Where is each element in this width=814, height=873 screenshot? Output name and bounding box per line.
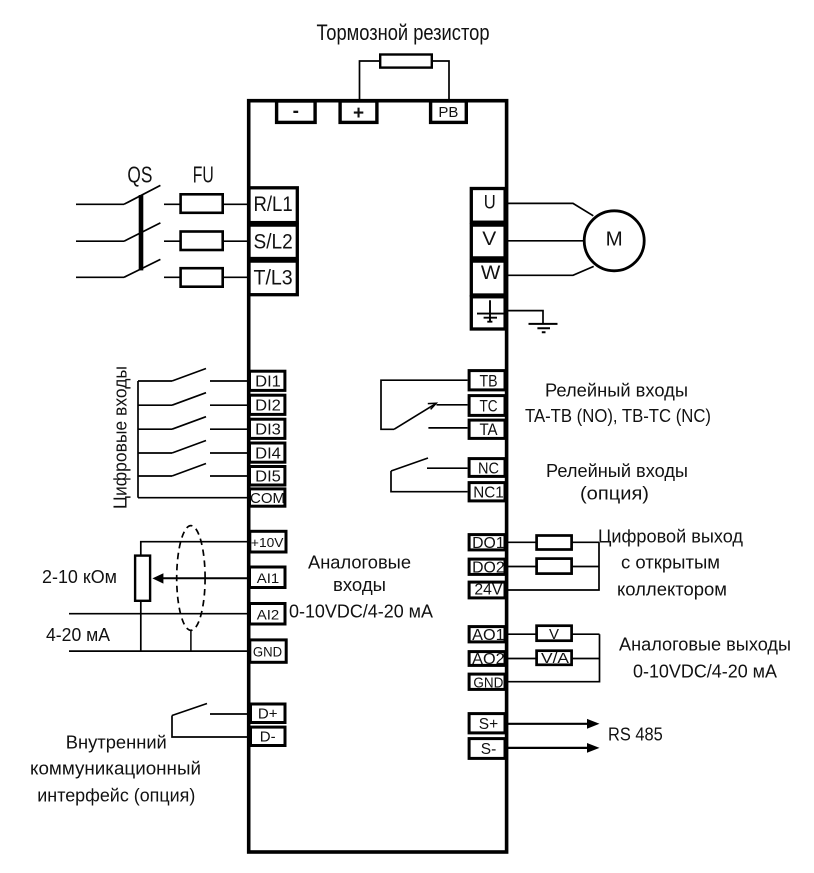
svg-text:AI1: AI1 [257, 570, 280, 586]
svg-text:Релейный входы: Релейный входы [546, 461, 688, 481]
svg-text:0-10VDC/4-20 мА: 0-10VDC/4-20 мА [633, 662, 777, 682]
svg-text:AO2: AO2 [472, 651, 505, 668]
svg-text:V: V [482, 228, 496, 250]
svg-text:DI5: DI5 [255, 468, 281, 485]
svg-text:DI4: DI4 [255, 445, 281, 462]
svg-text:V/A: V/A [541, 650, 569, 667]
svg-text:NC1: NC1 [473, 485, 504, 502]
svg-text:входы: входы [333, 575, 386, 595]
svg-text:TC: TC [479, 398, 497, 416]
svg-text:GND: GND [253, 644, 282, 660]
svg-text:R/L1: R/L1 [254, 193, 293, 216]
svg-text:GND: GND [473, 674, 503, 691]
svg-text:S+: S+ [479, 716, 498, 733]
svg-text:D+: D+ [258, 706, 278, 723]
svg-text:Тормозной резистор: Тормозной резистор [317, 20, 490, 45]
svg-text:DO1: DO1 [472, 535, 505, 552]
svg-text:PB: PB [438, 104, 458, 121]
svg-text:DO2: DO2 [472, 559, 505, 576]
svg-text:Релейный входы: Релейный входы [545, 381, 688, 401]
svg-text:M: M [606, 228, 623, 251]
svg-text:Аналоговые: Аналоговые [308, 552, 411, 572]
svg-text:DI1: DI1 [255, 373, 281, 390]
svg-text:FU: FU [193, 162, 214, 188]
svg-text:с открытым: с открытым [621, 553, 720, 573]
svg-text:W: W [481, 263, 501, 284]
svg-text:QS: QS [127, 162, 152, 188]
svg-text:2-10 кОм: 2-10 кОм [42, 567, 117, 587]
svg-text:интерфейс (опция): интерфейс (опция) [37, 785, 195, 805]
svg-text:Аналоговые выходы: Аналоговые выходы [619, 635, 791, 655]
svg-text:TA: TA [479, 421, 497, 439]
svg-text:T/L3: T/L3 [254, 267, 293, 290]
svg-text:24V: 24V [474, 582, 503, 599]
svg-text:AO1: AO1 [472, 627, 505, 644]
svg-text:COM: COM [250, 490, 285, 507]
svg-text:Цифровой выход: Цифровой выход [598, 526, 743, 546]
svg-text:DI3: DI3 [255, 422, 281, 439]
svg-text:TB: TB [479, 373, 497, 391]
svg-text:коллектором: коллектором [617, 579, 727, 599]
svg-text:Внутренний: Внутренний [66, 732, 167, 752]
svg-text:TA-TB (NO), TB-TC (NC): TA-TB (NO), TB-TC (NC) [525, 406, 711, 426]
svg-text:(опция): (опция) [580, 484, 649, 504]
svg-text:S/L2: S/L2 [254, 230, 293, 253]
svg-text:RS 485: RS 485 [608, 725, 663, 745]
svg-text:AI2: AI2 [257, 607, 280, 623]
svg-text:S-: S- [481, 741, 497, 758]
svg-text:0-10VDC/4-20 мА: 0-10VDC/4-20 мА [289, 602, 433, 622]
svg-text:V: V [549, 626, 559, 643]
svg-text:U: U [484, 192, 496, 214]
svg-text:-: - [293, 101, 299, 122]
svg-text:4-20 мА: 4-20 мА [46, 625, 110, 645]
svg-text:NC: NC [478, 460, 499, 477]
svg-text:DI2: DI2 [255, 398, 281, 415]
svg-text:коммуникационный: коммуникационный [30, 758, 201, 778]
svg-text:+: + [353, 103, 364, 124]
svg-text:Цифровые входы: Цифровые входы [111, 366, 131, 509]
svg-text:+10V: +10V [251, 535, 284, 550]
svg-text:D-: D- [260, 729, 276, 746]
